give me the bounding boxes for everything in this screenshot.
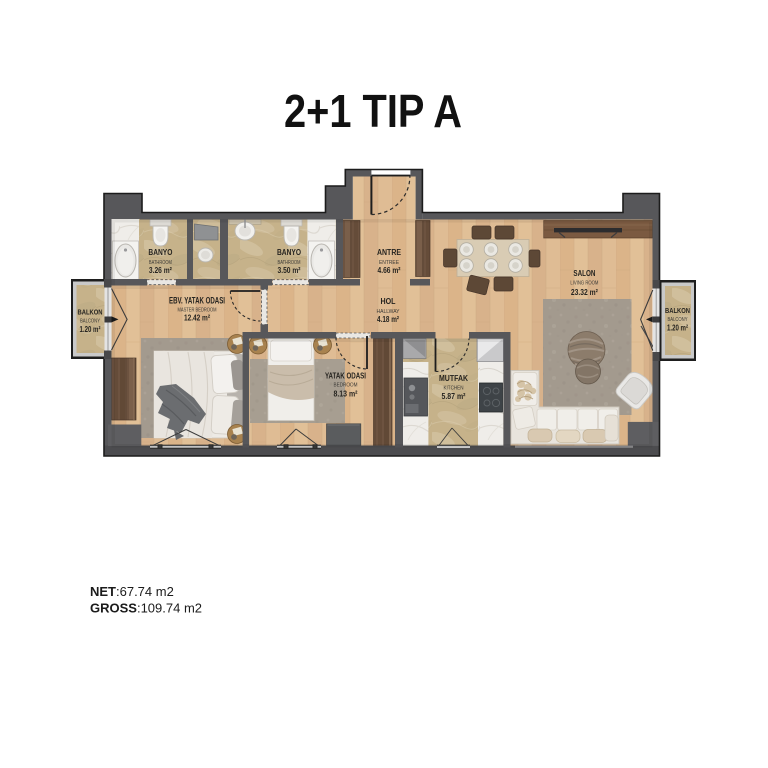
svg-text:NET:67.74 m2: NET:67.74 m2 [90,584,174,599]
svg-text:BALCONY: BALCONY [668,317,689,323]
svg-text:BALCONY: BALCONY [80,319,101,325]
svg-text:HOL: HOL [381,297,396,306]
svg-text:LIVING ROOM: LIVING ROOM [570,281,598,287]
svg-text:5.87 m²: 5.87 m² [442,391,466,401]
svg-text:BALKON: BALKON [665,306,690,315]
svg-text:4.66 m²: 4.66 m² [378,265,401,275]
svg-text:3.50 m²: 3.50 m² [278,265,301,275]
svg-text:23.32 m²: 23.32 m² [571,287,598,297]
svg-text:BANYO: BANYO [148,248,172,257]
svg-text:4.18 m²: 4.18 m² [377,314,399,324]
svg-text:EBV. YATAK ODASI: EBV. YATAK ODASI [169,296,225,306]
svg-text:MUTFAK: MUTFAK [439,373,469,383]
svg-text:SALON: SALON [573,268,595,278]
svg-text:8.13 m²: 8.13 m² [334,389,358,399]
svg-text:12.42 m²: 12.42 m² [184,313,210,323]
svg-text:2+1 TIP A: 2+1 TIP A [284,85,462,137]
svg-text:3.26 m²: 3.26 m² [149,265,172,275]
svg-text:ANTRE: ANTRE [377,248,402,257]
svg-text:YATAK ODASI: YATAK ODASI [325,371,366,381]
svg-text:1.20 m²: 1.20 m² [667,324,688,333]
svg-text:1.20 m²: 1.20 m² [80,325,101,334]
svg-text:BALKON: BALKON [78,308,103,317]
svg-text:GROSS:109.74 m2: GROSS:109.74 m2 [90,601,202,616]
svg-text:BANYO: BANYO [277,248,301,257]
